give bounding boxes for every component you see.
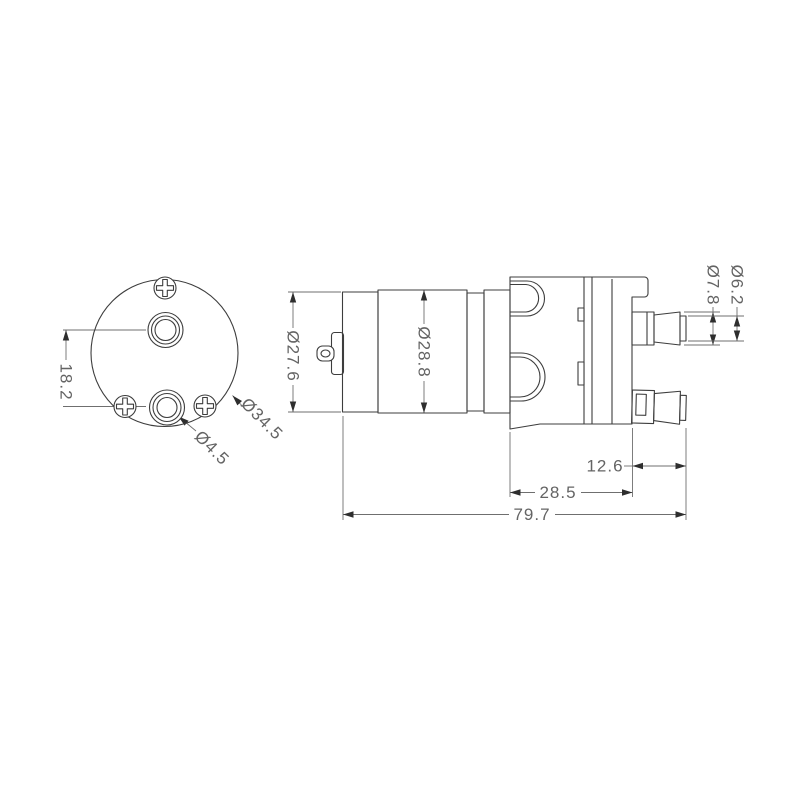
side-view bbox=[317, 277, 686, 429]
head-clip-notch bbox=[578, 308, 584, 321]
port-boss-circle bbox=[150, 390, 185, 425]
screw-head-circle bbox=[114, 396, 136, 418]
dim-port-spacing: 18.2 bbox=[57, 330, 147, 407]
terminal-spade bbox=[317, 346, 334, 361]
geometry-layer bbox=[91, 277, 686, 429]
dim-text-nozzle-barb-diameter: Ø7.8 bbox=[704, 265, 723, 306]
port-lower bbox=[150, 390, 185, 425]
dim-text-rear-cap-diameter: Ø27.6 bbox=[284, 330, 303, 381]
dim-text-overall-length: 79.7 bbox=[513, 505, 550, 524]
nozzle-barb-cone bbox=[654, 312, 680, 345]
pump-lobe-top-outer bbox=[510, 281, 545, 316]
dim-text-pump-head-length: 28.5 bbox=[539, 483, 576, 502]
pump-head-outline bbox=[510, 277, 648, 429]
nozzle-tip bbox=[680, 395, 687, 420]
pump-collar bbox=[484, 290, 510, 413]
front-view bbox=[91, 277, 238, 427]
nozzle-barb-cone bbox=[654, 391, 681, 425]
nozzle-bottom bbox=[632, 390, 687, 424]
dim-text-port-hole-diameter: Ø4.5 bbox=[191, 427, 233, 469]
drawing-page: 18.2 Ø34.5 Ø4.5 Ø27.6 Ø28.8 bbox=[0, 0, 800, 800]
dim-text-motor-body-diameter: Ø28.8 bbox=[415, 326, 434, 377]
nozzle-base bbox=[632, 390, 655, 424]
screw-head-circle bbox=[194, 395, 216, 417]
mounting-screw-right bbox=[194, 395, 216, 417]
dim-text-port-spacing: 18.2 bbox=[57, 363, 76, 400]
mounting-screw-left bbox=[114, 396, 136, 418]
motor-rear-cap bbox=[343, 292, 379, 412]
port-upper bbox=[148, 313, 183, 348]
pump-lobe-bottom-inner bbox=[510, 357, 540, 397]
pump-lobe-top-inner bbox=[510, 285, 539, 313]
dim-port-hole-diameter: Ø4.5 bbox=[179, 417, 234, 470]
dim-text-nozzle-tip-diameter: Ø6.2 bbox=[728, 265, 747, 306]
dim-text-flange-diameter: Ø34.5 bbox=[237, 394, 287, 444]
motor-front-ring bbox=[467, 293, 484, 411]
technical-drawing-canvas: 18.2 Ø34.5 Ø4.5 Ø27.6 Ø28.8 bbox=[0, 0, 800, 800]
nozzle-base bbox=[632, 312, 654, 345]
terminal-tab bbox=[317, 333, 344, 375]
mounting-screw-top bbox=[154, 277, 176, 299]
dim-motor-body-diameter: Ø28.8 bbox=[415, 290, 434, 413]
head-clip-notch bbox=[578, 362, 584, 385]
dim-pump-head-length: 28.5 bbox=[510, 483, 633, 502]
dim-nozzle-barb-diameter: Ø7.8 bbox=[684, 265, 723, 345]
dim-overall-length: 79.7 bbox=[343, 505, 686, 524]
pump-head bbox=[510, 277, 648, 429]
dim-nozzle-length: 12.6 bbox=[586, 457, 686, 476]
nozzle-tip bbox=[680, 316, 686, 341]
nozzle-base-window bbox=[636, 394, 647, 415]
screw-head-circle bbox=[154, 277, 176, 299]
dim-flange-diameter: Ø34.5 bbox=[233, 394, 287, 444]
port-boss-circle bbox=[148, 313, 183, 348]
nozzle-top bbox=[632, 312, 686, 345]
dim-text-nozzle-length: 12.6 bbox=[586, 457, 623, 476]
